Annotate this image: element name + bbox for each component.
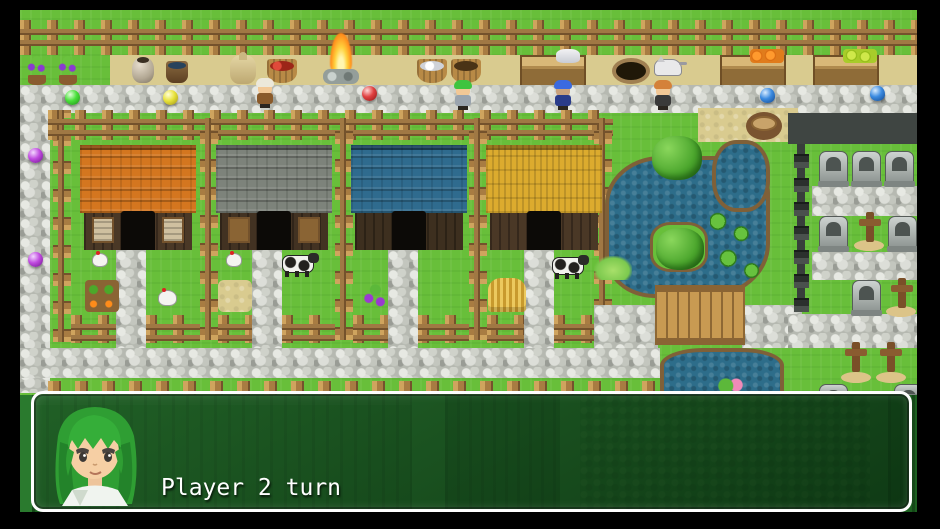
divider-fence: [469, 118, 487, 340]
plot-fence: [554, 315, 594, 343]
purple-orb[interactable]: [28, 148, 43, 163]
yellow-orb[interactable]: [163, 90, 178, 105]
house-gray: [220, 145, 328, 250]
purple-orb[interactable]: [28, 252, 43, 267]
house-blue: [355, 145, 463, 250]
yard-path: [116, 250, 146, 362]
left-fence: [53, 110, 71, 342]
eggplant-pot: [23, 55, 51, 85]
rooster[interactable]: [158, 290, 177, 306]
yard-path: [388, 250, 418, 362]
water-orb[interactable]: [760, 88, 775, 103]
graveyard-wall: [788, 113, 917, 144]
carrot-patch: [85, 280, 119, 312]
yard-path: [252, 250, 282, 362]
npc-farmer[interactable]: [255, 78, 275, 108]
game-screen: Player 2 turn Money: $50 Crops: 46: [0, 0, 940, 529]
window-shutter: [228, 217, 250, 243]
npc-blue-hair[interactable]: [553, 80, 573, 110]
player-portrait: [46, 402, 144, 506]
stall-carrots: [720, 55, 786, 87]
cat[interactable]: [654, 59, 682, 76]
wheat-crop: [488, 278, 526, 312]
roof-orange: [80, 145, 196, 213]
grave-cross: [857, 212, 883, 248]
bush: [656, 228, 704, 270]
main-path: [20, 348, 660, 378]
hen[interactable]: [226, 253, 242, 267]
cow[interactable]: [552, 255, 589, 279]
window-shutter: [298, 217, 320, 243]
yard-path: [524, 250, 554, 362]
plot-fence: [487, 315, 524, 343]
graveyard-path: [812, 252, 917, 280]
apple-goods: [843, 49, 877, 63]
campfire: [323, 32, 359, 84]
stall-apples: [813, 55, 879, 87]
storage-pit: [612, 58, 650, 84]
cow[interactable]: [282, 253, 319, 277]
water-orb[interactable]: [870, 86, 885, 101]
plot-fence: [282, 315, 335, 343]
house-orange: [84, 145, 192, 250]
roof-gray: [216, 145, 332, 213]
grain-sack: [230, 55, 256, 84]
plot-fence: [218, 315, 252, 343]
red-orb[interactable]: [362, 86, 377, 101]
flour-sack: [556, 49, 580, 63]
tree-stump: [746, 112, 782, 140]
plot-fence: [418, 315, 469, 343]
grave-cross: [843, 342, 869, 378]
grape-crop: [358, 278, 394, 312]
hen[interactable]: [92, 253, 108, 267]
tombstone: [819, 216, 848, 250]
lily-pads: [710, 205, 762, 287]
cotton-basket: [417, 59, 447, 83]
message-text: Player 2 turn Money: $50 Crops: 46: [161, 401, 341, 529]
tombstone: [888, 216, 917, 250]
plot-fence: [71, 315, 116, 343]
grass-tuft: [594, 256, 632, 280]
plot-fence: [146, 315, 200, 343]
bush: [652, 136, 702, 180]
house-door[interactable]: [121, 211, 155, 250]
house-door[interactable]: [257, 211, 291, 250]
roof-thatch: [486, 145, 602, 213]
bridge: [655, 285, 745, 345]
npc-orange-hair[interactable]: [653, 80, 673, 110]
green-haired-girl-portrait: [46, 402, 144, 506]
tombstone: [852, 280, 881, 314]
mid-fence: [48, 110, 613, 140]
grave-cross: [889, 278, 915, 314]
green-orb[interactable]: [65, 90, 80, 105]
tombstone: [819, 151, 848, 185]
iron-fence: [778, 342, 836, 378]
tombstone: [852, 151, 881, 185]
message-window[interactable]: Player 2 turn Money: $50 Crops: 46: [31, 391, 912, 512]
roof-blue: [351, 145, 467, 213]
iron-fence-vertical: [794, 144, 809, 312]
house-thatch: [490, 145, 598, 250]
house-door[interactable]: [392, 211, 426, 250]
window-shutter: [162, 217, 184, 243]
pond-lobe: [712, 140, 770, 212]
clay-vase: [132, 57, 154, 83]
water-bucket: [166, 61, 188, 83]
plot-fence: [353, 315, 388, 343]
sand-patch: [218, 280, 252, 312]
carrot-goods: [750, 49, 784, 63]
npc-green-hair[interactable]: [453, 80, 473, 110]
turn-line: Player 2 turn: [161, 471, 341, 506]
house-door[interactable]: [527, 211, 561, 250]
tombstone: [885, 151, 914, 185]
left-path: [20, 85, 50, 393]
eggplant-pot: [54, 55, 82, 85]
window-shutter: [92, 217, 114, 243]
grave-cross: [878, 342, 904, 378]
bridge-path-left: [594, 305, 658, 348]
